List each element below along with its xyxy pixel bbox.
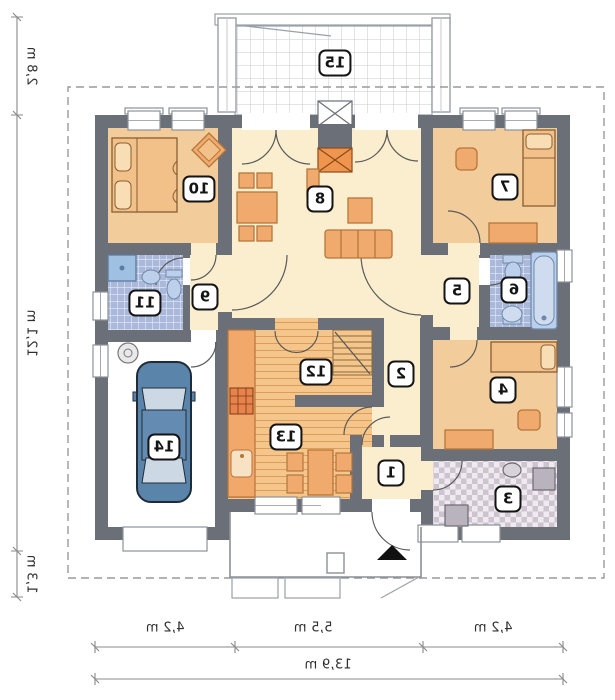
dim-height-main: 12,1 m (24, 309, 39, 357)
room-label-14: 14 (148, 434, 181, 461)
dim-height-bottom: 1,3 m (24, 555, 39, 594)
room-label-8: 8 (307, 186, 334, 213)
room-label-2: 2 (388, 361, 415, 388)
room-label-4: 4 (490, 377, 517, 404)
floor-plan-page: 1 2 3 4 5 6 7 8 9 10 11 12 13 14 15 2,8 … (0, 0, 615, 700)
dim-width-left: 4,2 m (146, 621, 185, 636)
room-label-10: 10 (183, 176, 216, 203)
room-label-1: 1 (378, 460, 405, 487)
dim-width-right: 4,2 m (474, 621, 513, 636)
dim-height-top: 2,8 m (24, 47, 39, 86)
room-label-6: 6 (501, 277, 528, 304)
room-label-3: 3 (495, 486, 522, 513)
room-label-9: 9 (192, 284, 219, 311)
room-label-13: 13 (270, 424, 303, 451)
room-label-12: 12 (300, 359, 333, 386)
entrance-arrow-icon (377, 545, 407, 560)
room-label-11: 11 (129, 290, 162, 317)
dim-width-center: 5,5 m (294, 621, 333, 636)
fireplace-chimney (318, 101, 352, 172)
staircase (333, 330, 372, 375)
floor-plan-drawing (0, 0, 615, 700)
room-label-7: 7 (492, 174, 519, 201)
dim-width-total: 13,9 m (304, 658, 352, 673)
room-label-5: 5 (444, 278, 471, 305)
room-label-15: 15 (319, 50, 352, 77)
